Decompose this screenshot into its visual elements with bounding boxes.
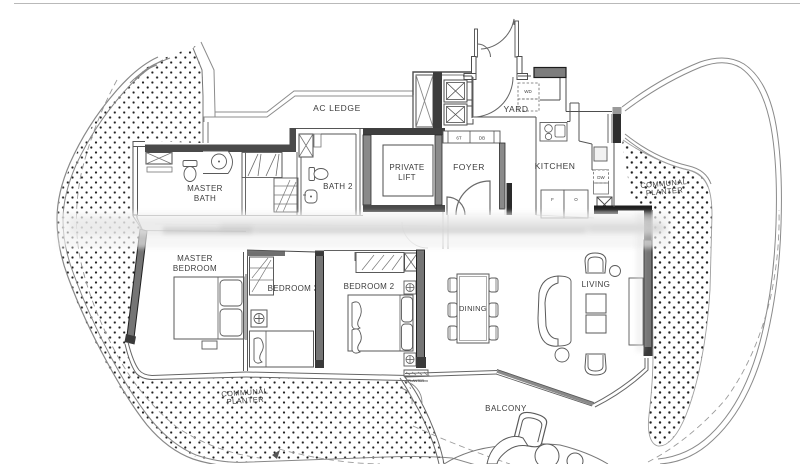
svg-text:MASTER: MASTER (177, 254, 213, 263)
svg-text:O: O (574, 197, 578, 202)
svg-text:FOYER: FOYER (453, 162, 485, 172)
svg-text:BALCONY: BALCONY (485, 404, 527, 413)
svg-text:AC LEDGE: AC LEDGE (313, 103, 361, 113)
svg-text:6T: 6T (456, 136, 462, 141)
svg-text:LIFT: LIFT (398, 173, 416, 182)
svg-text:F: F (551, 197, 554, 202)
svg-text:BEDROOM 3: BEDROOM 3 (268, 284, 319, 293)
svg-text:DINING: DINING (459, 304, 487, 313)
svg-text:LIVING: LIVING (582, 280, 611, 289)
svg-text:PLANTER: PLANTER (408, 379, 425, 383)
svg-text:DW: DW (597, 175, 605, 180)
svg-text:BATH 2: BATH 2 (323, 182, 353, 191)
svg-text:DB: DB (479, 136, 485, 141)
svg-text:BEDROOM: BEDROOM (173, 264, 217, 273)
svg-text:KITCHEN: KITCHEN (535, 161, 576, 171)
svg-text:YARD: YARD (504, 104, 529, 114)
svg-text:BATH: BATH (194, 194, 216, 203)
svg-text:BEDROOM 2: BEDROOM 2 (344, 282, 395, 291)
svg-text:WD: WD (524, 89, 532, 94)
svg-text:PRIVATE: PRIVATE (389, 163, 424, 172)
svg-text:MASTER: MASTER (187, 184, 223, 193)
